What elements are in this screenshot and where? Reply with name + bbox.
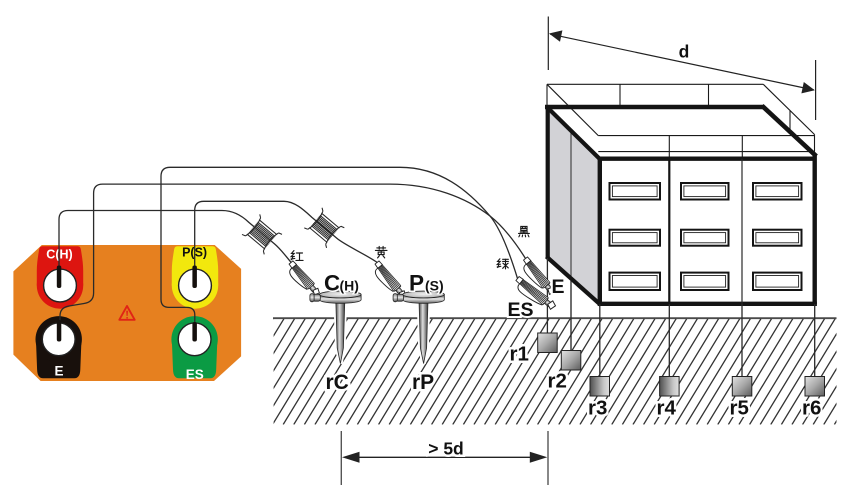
svg-text:r1: r1 (510, 343, 529, 366)
svg-text:r3: r3 (588, 397, 607, 420)
svg-text:r6: r6 (802, 397, 821, 420)
svg-text:ES: ES (186, 367, 204, 382)
svg-text:rC: rC (326, 371, 349, 394)
svg-text:rP: rP (412, 371, 434, 394)
svg-text:P: P (409, 270, 424, 295)
svg-text:ES: ES (508, 299, 534, 321)
svg-text:C: C (324, 270, 340, 295)
svg-text:(S): (S) (425, 277, 444, 293)
svg-text:r2: r2 (548, 370, 567, 393)
svg-text:E: E (552, 276, 565, 298)
svg-text:E: E (54, 364, 63, 379)
svg-text:(H): (H) (340, 277, 359, 293)
svg-text:r5: r5 (730, 397, 749, 420)
svg-text:r4: r4 (657, 397, 677, 420)
svg-text:> 5d: > 5d (428, 438, 464, 458)
svg-text:d: d (679, 42, 690, 62)
